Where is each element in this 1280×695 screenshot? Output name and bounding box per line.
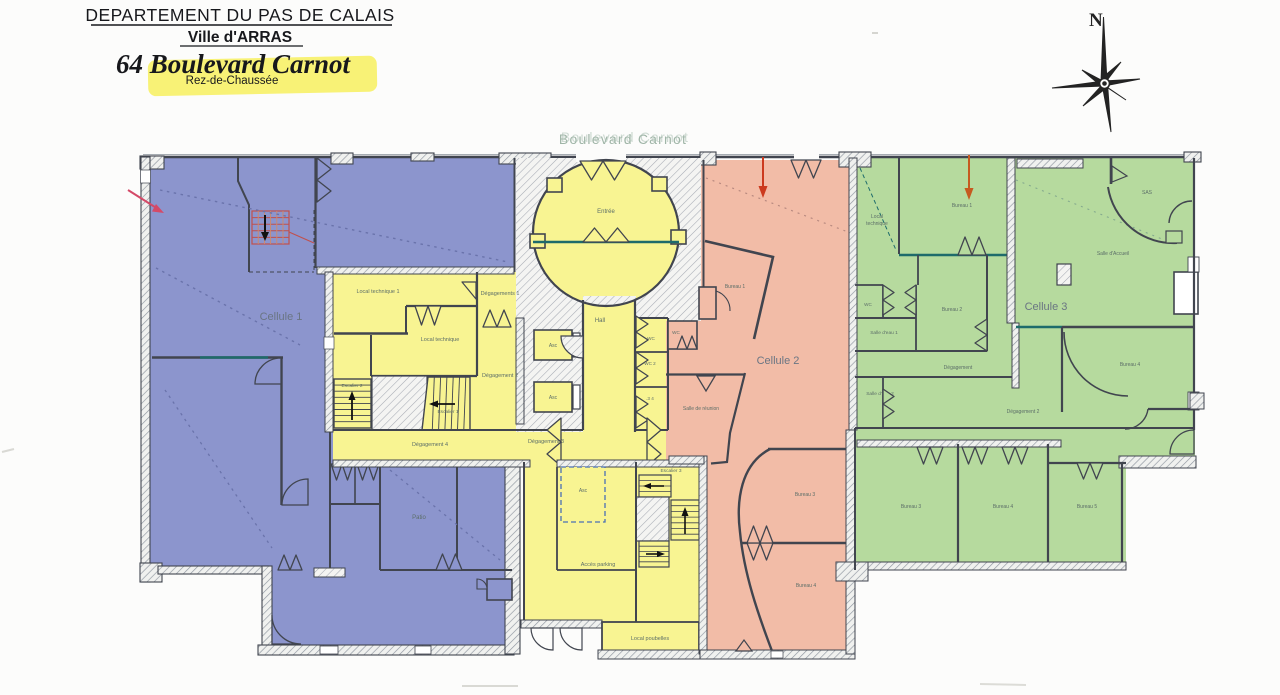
svg-text:Escalier 2: Escalier 2 (341, 383, 362, 389)
svg-text:Asc: Asc (549, 395, 558, 401)
svg-text:Asc: Asc (579, 488, 588, 494)
svg-text:Dégagement 2: Dégagement 2 (482, 373, 518, 379)
svg-text:Dégagement 4: Dégagement 4 (412, 442, 448, 448)
svg-text:Bureau 5: Bureau 5 (1077, 504, 1098, 510)
svg-text:Dégagement 2: Dégagement 2 (1007, 409, 1040, 415)
svg-text:Cellule 1: Cellule 1 (260, 311, 303, 323)
svg-text:Patio: Patio (412, 515, 426, 521)
svg-text:Local technique: Local technique (421, 337, 460, 343)
svg-text:Bureau 4: Bureau 4 (796, 583, 817, 589)
svg-text:WC: WC (672, 330, 680, 335)
svg-text:N: N (1089, 10, 1103, 31)
svg-text:Local: Local (871, 214, 883, 220)
svg-text:Escalier 3: Escalier 3 (660, 468, 681, 474)
svg-text:Asc: Asc (549, 343, 558, 349)
svg-text:Boulevard Carnot: Boulevard Carnot (561, 129, 689, 145)
svg-text:Bureau 4: Bureau 4 (993, 504, 1014, 510)
svg-text:Salle de réunion: Salle de réunion (683, 406, 719, 412)
svg-text:Ville d'ARRAS: Ville d'ARRAS (188, 29, 292, 46)
svg-text:technique: technique (866, 221, 888, 227)
svg-text:Salle d'Accueil: Salle d'Accueil (1097, 251, 1129, 257)
svg-text:Rez-de-Chaussée: Rez-de-Chaussée (186, 75, 279, 87)
svg-text:.3 4: .3 4 (646, 396, 654, 401)
svg-text:WC: WC (864, 302, 872, 307)
svg-text:Bureau 3: Bureau 3 (795, 492, 816, 498)
svg-text:Salle d'eau 1: Salle d'eau 1 (870, 330, 898, 336)
svg-text:Dégagements 1: Dégagements 1 (481, 291, 520, 297)
svg-text:DEPARTEMENT DU PAS DE CALAIS: DEPARTEMENT DU PAS DE CALAIS (85, 5, 394, 25)
svg-text:Dégagement: Dégagement (944, 365, 973, 371)
svg-text:Bureau 1: Bureau 1 (725, 284, 746, 290)
svg-text:Local poubelles: Local poubelles (631, 636, 669, 642)
svg-text:Bureau 3: Bureau 3 (901, 504, 922, 510)
svg-text:Escalier 1: Escalier 1 (437, 409, 458, 415)
svg-text:Entrée: Entrée (597, 209, 615, 215)
svg-text:Bureau 1: Bureau 1 (952, 203, 973, 209)
svg-text:Bureau 2: Bureau 2 (942, 307, 963, 313)
svg-text:Hall: Hall (595, 318, 605, 324)
svg-text:Cellule 3: Cellule 3 (1025, 301, 1068, 313)
svg-text:Accès parking: Accès parking (581, 562, 616, 568)
svg-text:Local technique 1: Local technique 1 (356, 289, 399, 295)
svg-text:Cellule 2: Cellule 2 (757, 355, 800, 367)
svg-text:SAS: SAS (1142, 190, 1153, 196)
svg-text:Bureau 4: Bureau 4 (1120, 362, 1141, 368)
svg-text:WC 2: WC 2 (644, 361, 656, 366)
